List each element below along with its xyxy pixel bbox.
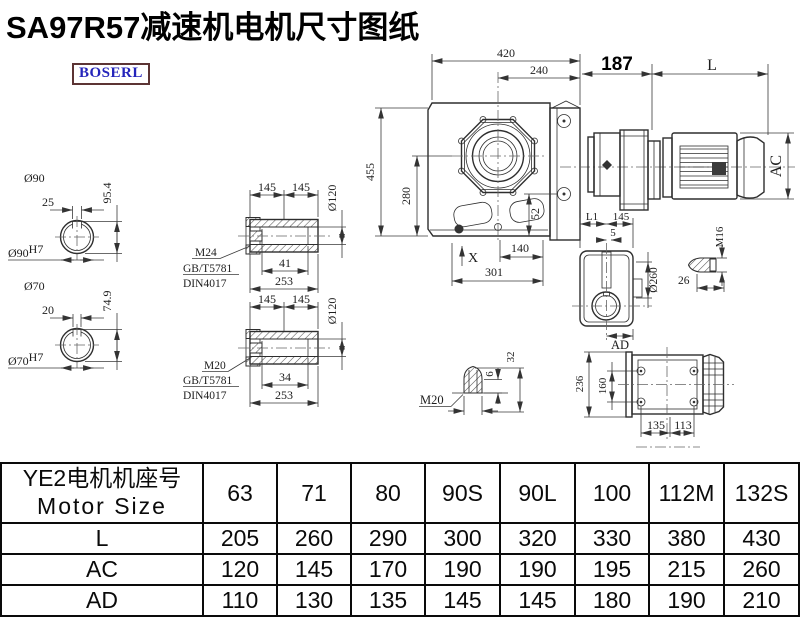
dim-key25: 25: [42, 195, 54, 209]
gearbox-top-view: 160 236 135 113: [574, 347, 734, 447]
dim-26: 26: [678, 275, 690, 287]
page: { "title": "SA97R57减速机电机尺寸图纸", "logo": "…: [0, 0, 800, 613]
col-header-71: 71: [277, 463, 351, 523]
label-gbt5781-a: GB/T5781: [183, 263, 232, 275]
dim-dia120-b: Ø120: [325, 298, 339, 325]
terminal-box: [712, 162, 726, 175]
label-m24: M24: [195, 247, 217, 259]
dim-L1: L1: [586, 211, 598, 223]
hollow-shaft-m24: 145 145 Ø120 M24 GB/T5781 DIN4017 41 253: [183, 180, 346, 293]
col-header-90S: 90S: [425, 463, 500, 523]
oil-plug-icon: [602, 160, 612, 170]
cell-L-132S: 430: [724, 523, 799, 554]
table-row-L: L 205 260 290 300 320 330 380 430: [1, 523, 799, 554]
cell-AC-100: 195: [575, 554, 649, 585]
dim-dia70: Ø70: [24, 279, 45, 293]
gearbox-side-view: L1 145 5 Ø260 AD: [572, 211, 660, 352]
shaft-section-70: Ø70 20 74.9 Ø70H7: [8, 279, 122, 370]
dim-95-4: 95.4: [100, 183, 114, 204]
cell-L-90L: 320: [500, 523, 575, 554]
dim-253-b: 253: [275, 388, 293, 402]
table-row-AD: AD 110 130 135 145 145 180 190 210: [1, 585, 799, 616]
header-en: Motor Size: [3, 493, 201, 521]
dim-fit70: Ø70H7: [8, 350, 43, 368]
col-header-63: 63: [203, 463, 277, 523]
cell-AD-80: 135: [351, 585, 425, 616]
col-header-100: 100: [575, 463, 649, 523]
dim-145b: 145: [292, 180, 310, 194]
cell-L-63: 205: [203, 523, 277, 554]
label-gbt5781-b: GB/T5781: [183, 375, 232, 387]
dim-145-side: 145: [613, 211, 630, 223]
table-header-row: YE2电机机座号 Motor Size 63 71 80 90S 90L 100…: [1, 463, 799, 523]
dim-74-9: 74.9: [100, 291, 114, 312]
cell-L-112M: 380: [649, 523, 724, 554]
cell-AC-90S: 190: [425, 554, 500, 585]
row-label-AD: AD: [1, 585, 203, 616]
cell-AD-71: 130: [277, 585, 351, 616]
col-header-80: 80: [351, 463, 425, 523]
label-din4017-a: DIN4017: [183, 278, 227, 290]
dim-key20: 20: [42, 303, 54, 317]
cell-AC-71: 145: [277, 554, 351, 585]
dim-145a: 145: [258, 180, 276, 194]
m20-plug-view: M20 6 32: [419, 352, 524, 416]
row-label-AC: AC: [1, 554, 203, 585]
cell-AC-90L: 190: [500, 554, 575, 585]
dim-34: 34: [279, 370, 291, 384]
dim-5: 5: [610, 227, 616, 239]
cell-AC-112M: 215: [649, 554, 724, 585]
cell-AC-132S: 260: [724, 554, 799, 585]
motor-size-table: YE2电机机座号 Motor Size 63 71 80 90S 90L 100…: [0, 462, 800, 617]
label-m16: M16: [714, 226, 726, 247]
header-zh: YE2电机机座号: [3, 465, 201, 493]
dim-135: 135: [647, 418, 665, 432]
dim-240: 240: [530, 63, 548, 77]
dim-236: 236: [574, 375, 586, 392]
dim-420: 420: [497, 46, 515, 60]
cell-AD-63: 110: [203, 585, 277, 616]
dim-32: 32: [505, 352, 517, 363]
cell-L-90S: 300: [425, 523, 500, 554]
dim-52: 52: [528, 208, 542, 220]
header-motor-size: YE2电机机座号 Motor Size: [1, 463, 203, 523]
row-label-L: L: [1, 523, 203, 554]
dim-187: 187: [601, 54, 633, 75]
main-front-view: [428, 72, 795, 240]
label-m20-cone: M20: [420, 393, 444, 407]
drain-plug: [455, 225, 464, 234]
col-header-112M: 112M: [649, 463, 724, 523]
dim-dia90: Ø90: [24, 171, 45, 185]
m16-plug-view: M16 26: [678, 226, 727, 292]
dim-AD: AD: [611, 338, 629, 352]
dim-280: 280: [399, 187, 413, 205]
label-m20: M20: [204, 360, 226, 372]
dim-145d: 145: [292, 292, 310, 306]
dim-301: 301: [485, 265, 503, 279]
table-row-AC: AC 120 145 170 190 190 195 215 260: [1, 554, 799, 585]
cell-AD-90S: 145: [425, 585, 500, 616]
dim-41: 41: [279, 256, 291, 270]
hollow-shaft-m20: 145 145 Ø120 M20 GB/T5781 DIN4017 34 253: [183, 292, 346, 407]
col-header-132S: 132S: [724, 463, 799, 523]
dim-145c: 145: [258, 292, 276, 306]
label-din4017-b: DIN4017: [183, 390, 227, 402]
cell-AD-112M: 190: [649, 585, 724, 616]
technical-drawing: 420 240 187 L AC 455 280 52 X 140 301 Ø9…: [0, 0, 800, 462]
dim-dia260: Ø260: [648, 267, 660, 293]
dim-455: 455: [363, 163, 377, 181]
cell-AD-100: 180: [575, 585, 649, 616]
cell-AD-132S: 210: [724, 585, 799, 616]
cell-L-100: 330: [575, 523, 649, 554]
dim-fit90: Ø90H7: [8, 242, 43, 260]
shaft-section-90: Ø90 25 95.4 Ø90H7: [8, 171, 122, 262]
cell-AD-90L: 145: [500, 585, 575, 616]
cell-L-71: 260: [277, 523, 351, 554]
dim-6: 6: [484, 371, 496, 377]
dim-dia120-a: Ø120: [325, 185, 339, 212]
cell-AC-63: 120: [203, 554, 277, 585]
dim-160: 160: [597, 377, 609, 394]
cell-AC-80: 170: [351, 554, 425, 585]
dim-140: 140: [511, 241, 529, 255]
dim-X: X: [468, 251, 478, 266]
dim-L: L: [707, 57, 717, 74]
dim-113: 113: [674, 418, 692, 432]
col-header-90L: 90L: [500, 463, 575, 523]
dim-253-a: 253: [275, 274, 293, 288]
motor-side-view: [588, 130, 764, 210]
cell-L-80: 290: [351, 523, 425, 554]
dim-AC: AC: [768, 155, 785, 177]
